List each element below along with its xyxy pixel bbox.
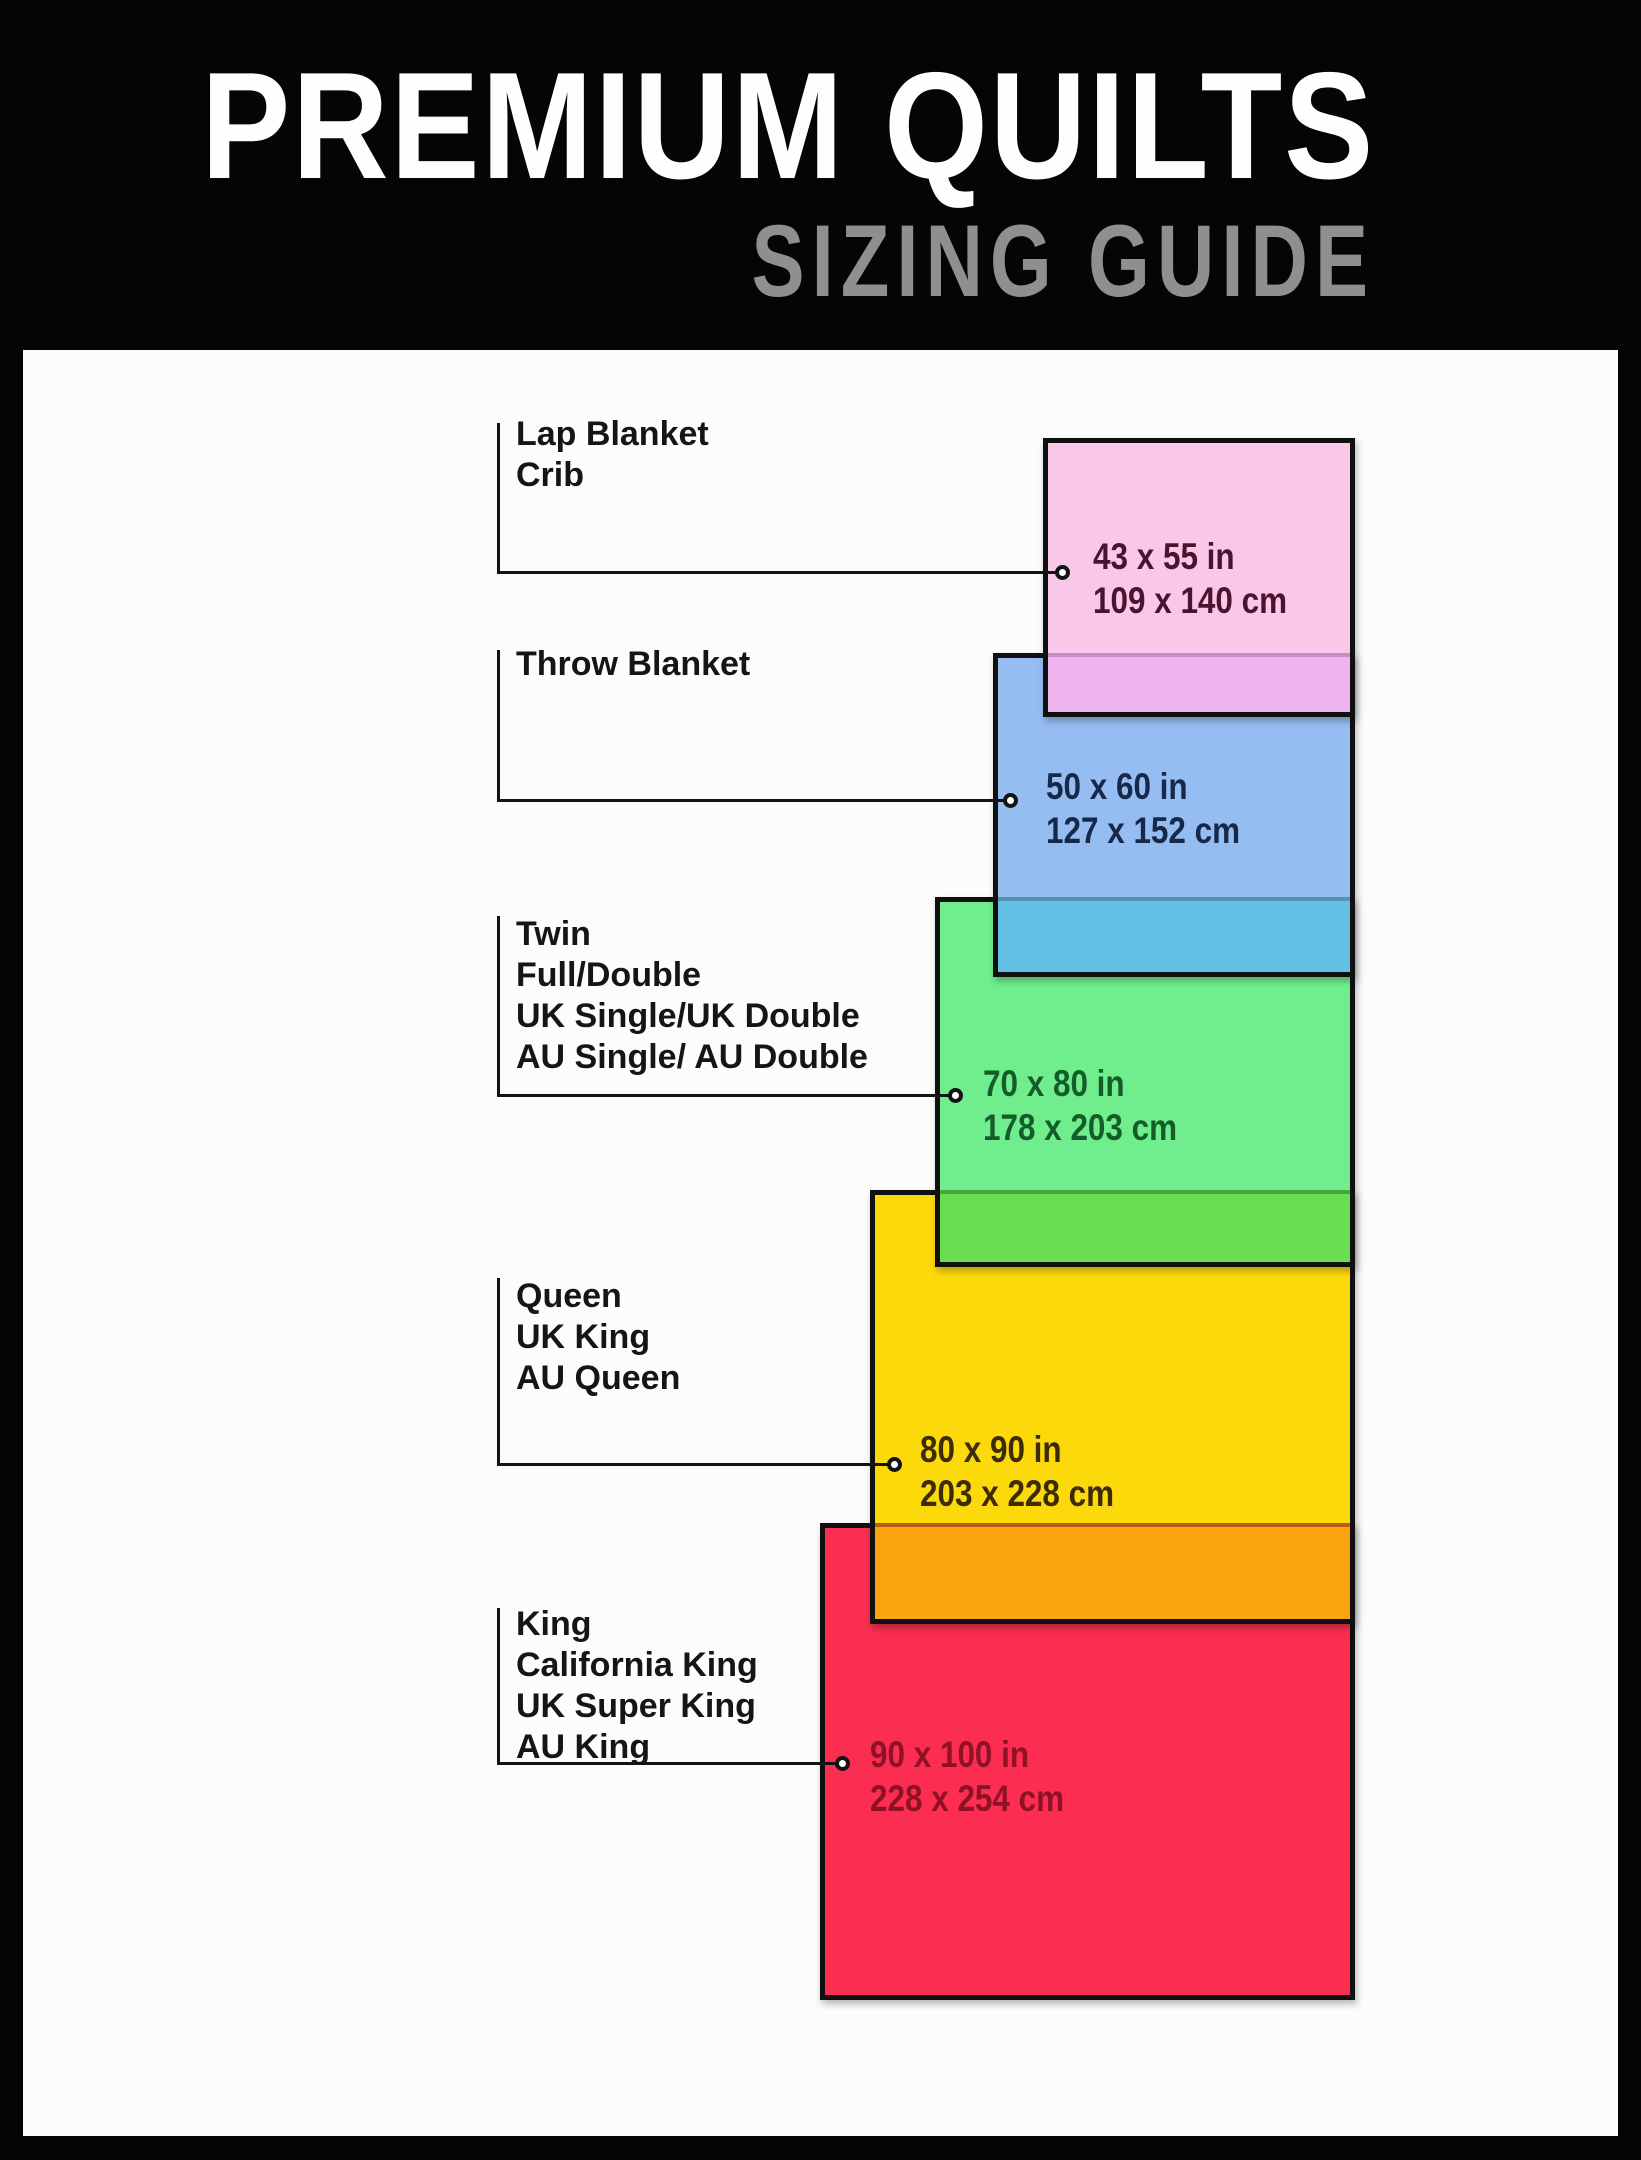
label-line: Crib [516,455,709,496]
king-leader-vertical [497,1608,500,1765]
king-leader-horizontal [497,1762,843,1765]
label-line: Throw Blanket [516,644,750,685]
label-line: Twin [516,914,868,955]
page-title: PREMIUM QUILTS [201,50,1375,202]
throw-leader-vertical [497,650,500,802]
dimension-inches: 50 x 60 in [1046,765,1240,809]
dimension-cm: 178 x 203 cm [983,1106,1177,1150]
king-dimensions: 90 x 100 in 228 x 254 cm [870,1733,1064,1821]
page-subtitle: SIZING GUIDE [334,210,1375,312]
queen-king-overlap [875,1523,1350,1619]
lap-crib-leader-dot [1055,565,1070,580]
dimension-cm: 127 x 152 cm [1046,809,1240,853]
throw-twin-overlap [998,897,1350,972]
label-line: California King [516,1645,758,1686]
label-line: AU Queen [516,1358,680,1399]
throw-leader-horizontal [497,799,1011,802]
label-line: King [516,1604,758,1645]
dimension-inches: 80 x 90 in [920,1428,1114,1472]
dimension-inches: 43 x 55 in [1093,535,1287,579]
label-line: UK King [516,1317,680,1358]
lap-crib-dimensions: 43 x 55 in 109 x 140 cm [1093,535,1287,623]
throw-label: Throw Blanket [516,644,750,685]
twin-queen-overlap [940,1190,1350,1262]
queen-dimensions: 80 x 90 in 203 x 228 cm [920,1428,1114,1516]
label-line: UK Single/UK Double [516,996,868,1037]
twin-leader-dot [948,1088,963,1103]
throw-dimensions: 50 x 60 in 127 x 152 cm [1046,765,1240,853]
label-line: AU Single/ AU Double [516,1037,868,1078]
dimension-cm: 203 x 228 cm [920,1472,1114,1516]
label-line: Lap Blanket [516,414,709,455]
label-line: Full/Double [516,955,868,996]
dimension-inches: 90 x 100 in [870,1733,1064,1777]
queen-leader-horizontal [497,1463,895,1466]
dimension-cm: 228 x 254 cm [870,1777,1064,1821]
lap-throw-overlap [1048,653,1350,712]
twin-dimensions: 70 x 80 in 178 x 203 cm [983,1062,1177,1150]
queen-leader-dot [887,1457,902,1472]
lap-crib-leader-vertical [497,423,500,574]
lap-crib-leader-horizontal [497,571,1063,574]
dimension-cm: 109 x 140 cm [1093,579,1287,623]
king-label: King California King UK Super King AU Ki… [516,1604,758,1768]
infographic-canvas: PREMIUM QUILTS SIZING GUIDE Lap Blanket … [0,0,1641,2160]
header: PREMIUM QUILTS SIZING GUIDE [41,0,1375,312]
throw-leader-dot [1003,793,1018,808]
queen-leader-vertical [497,1278,500,1466]
label-line: Queen [516,1276,680,1317]
queen-label: Queen UK King AU Queen [516,1276,680,1399]
twin-leader-horizontal [497,1094,956,1097]
label-line: UK Super King [516,1686,758,1727]
twin-label: Twin Full/Double UK Single/UK Double AU … [516,914,868,1078]
lap-crib-label: Lap Blanket Crib [516,414,709,496]
twin-leader-vertical [497,916,500,1097]
king-leader-dot [835,1756,850,1771]
dimension-inches: 70 x 80 in [983,1062,1177,1106]
